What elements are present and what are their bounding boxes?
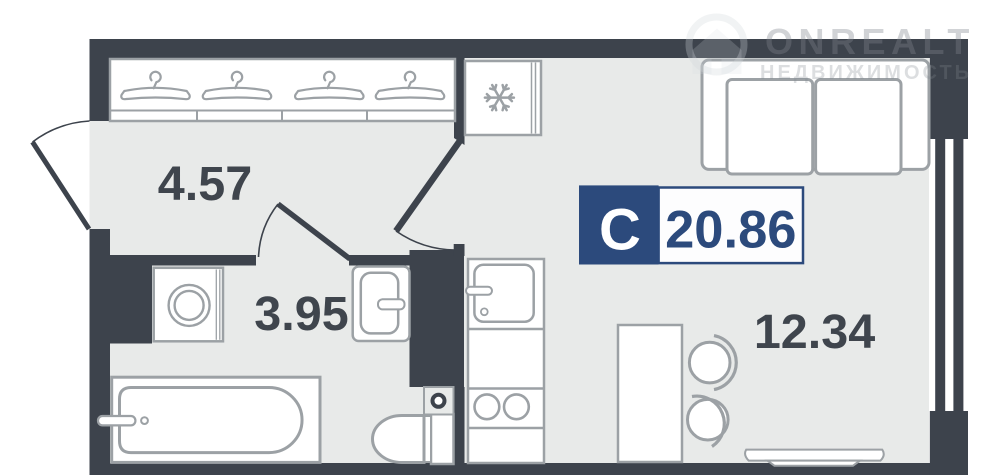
svg-text:4.57: 4.57 <box>158 157 252 211</box>
svg-text:ONREALT: ONREALT <box>765 21 975 62</box>
svg-text:3.95: 3.95 <box>254 287 348 341</box>
svg-text:С: С <box>599 197 641 262</box>
svg-text:20.86: 20.86 <box>665 201 796 260</box>
svg-text:НЕДВИЖИМОСТЬ: НЕДВИЖИМОСТЬ <box>760 62 972 84</box>
svg-text:12.34: 12.34 <box>754 305 875 359</box>
